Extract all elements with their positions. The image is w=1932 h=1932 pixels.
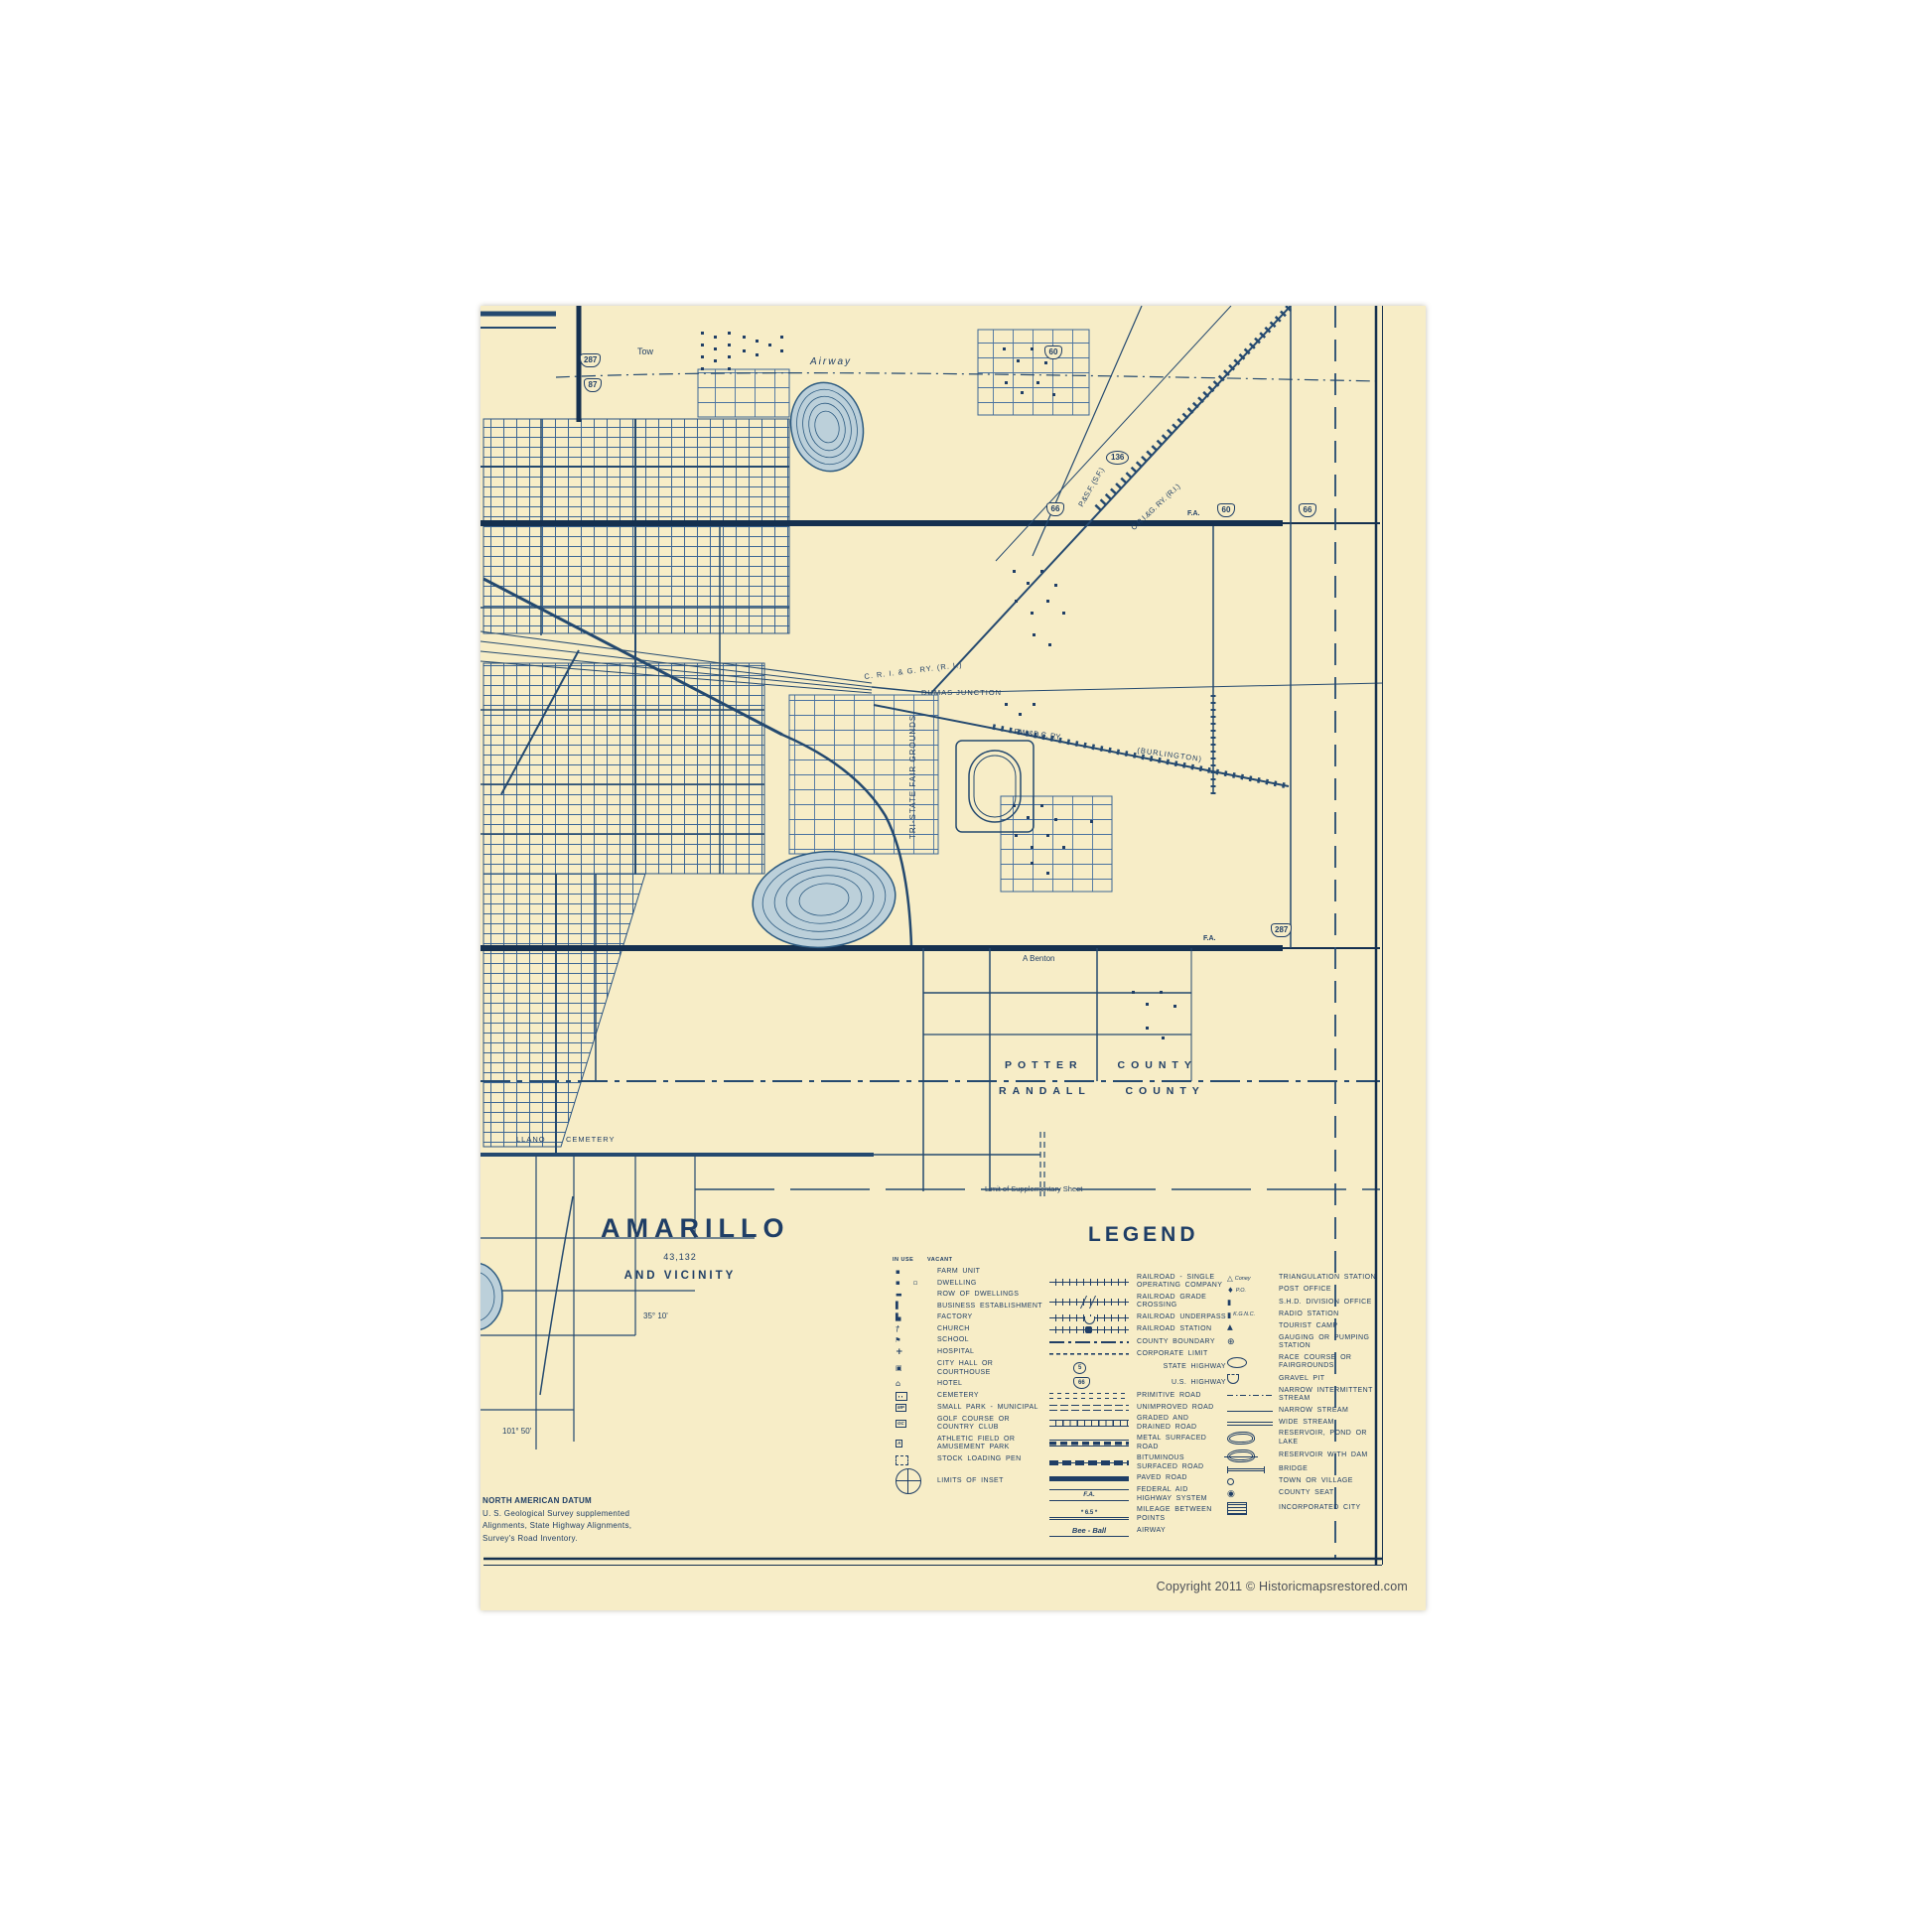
legend-item-label: GAUGING OR PUMPING STATION [1279,1334,1386,1351]
legend-row: A ATHLETIC FIELD OR AMUSEMENT PARK [896,1436,1049,1452]
legend-row: ▙ FACTORY [896,1313,1049,1321]
legend-glyph: ▪ [896,1280,900,1287]
street-grids [483,330,1112,1147]
legend-row: GRADED AND DRAINED ROAD [1049,1415,1226,1432]
legend-item-label: RAILROAD UNDERPASS [1137,1313,1226,1321]
legend-glyph [896,1392,907,1401]
dwelling-symbol: ▪▫ [896,1280,937,1287]
narrow-intermittent-stream-symbol [1227,1395,1279,1397]
label-limit-sheet: Limit of Supplementary Sheet [985,1185,1082,1193]
airway-sample-symbol: Bee - Ball [1049,1526,1129,1537]
label-llano: LLANO [516,1136,546,1144]
legend-item-label: RACE COURSE OR FAIRGROUNDS [1279,1354,1386,1371]
legend-row: RESERVOIR, POND OR LAKE [1227,1430,1416,1447]
legend-item-label: HOTEL [937,1380,962,1388]
legend-row: PAVED ROAD [1049,1474,1226,1483]
legend-row: PRIMITIVE ROAD [1049,1392,1226,1400]
race-course-symbol [1227,1357,1279,1368]
legend-item-label: FACTORY [937,1313,973,1321]
legend-row: BRIDGE [1227,1465,1416,1473]
legend-glyph: ⊕ [1227,1337,1235,1347]
legend-glyph: † [896,1325,899,1333]
legend-item-label: CORPORATE LIMIT [1137,1350,1208,1358]
legend-row: UNIMPROVED ROAD [1049,1404,1226,1412]
gauging-station-symbol: ⊕ [1227,1337,1279,1347]
legend-item-label: SCHOOL [937,1336,969,1344]
datum-line-2: U. S. Geological Survey supplemented [483,1510,631,1518]
legend-item-label: GRADED AND DRAINED ROAD [1137,1415,1226,1432]
legend-glyph [1227,1478,1234,1485]
legend-row: LIMITS OF INSET [896,1468,1049,1494]
legend-item-label: STOCK LOADING PEN [937,1455,1022,1463]
triangulation-station-symbol: △Coney [1227,1274,1279,1283]
legend-glyph [1227,1395,1273,1397]
legend-row: RAILROAD STATION [1049,1325,1226,1334]
legend-row: ▣ CITY HALL OR COURTHOUSE [896,1360,1049,1377]
legend-item-label: BRIDGE [1279,1465,1308,1473]
legend-item-label: U.S. HIGHWAY [1172,1379,1226,1387]
radio-station-symbol: ▮K.G.N.C. [1227,1311,1279,1319]
railroad-underpass-symbol [1049,1313,1129,1322]
legend-vacant-header: VACANT [927,1257,953,1263]
map-population: 43,132 [601,1253,759,1262]
legend-row: ▲ TOURIST CAMP [1227,1322,1416,1331]
county-seat-symbol: ◉ [1227,1489,1279,1499]
legend-item-label: RADIO STATION [1279,1311,1339,1318]
label-randall-county: RANDALL COUNTY [999,1086,1205,1097]
mileage-symbol: * 6.5 * [1049,1509,1129,1520]
legend-column-features: ▪ FARM UNIT ▪▫ DWELLING ▬ ROW OF DWELLIN… [896,1268,1049,1497]
railroad-grade-crossing-symbol [1049,1298,1129,1307]
legend-item-label: ROW OF DWELLINGS [937,1291,1019,1299]
federal-aid-symbol: F.A. [1049,1489,1129,1501]
legend-row: INCORPORATED CITY [1227,1502,1416,1515]
legend-row: ♦P.O. POST OFFICE [1227,1286,1416,1295]
datum-line-3: Alignments, State Highway Alignments, [483,1522,631,1530]
bituminous-road-symbol [1049,1459,1129,1466]
legend-glyph: ▪ [896,1269,900,1276]
legend-item-label: RESERVOIR, POND OR LAKE [1279,1430,1386,1447]
label-a-benton: A Benton [1023,955,1054,963]
legend-item-label: MILEAGE BETWEEN POINTS [1137,1506,1226,1523]
legend-vacant-glyph: ▫ [913,1280,918,1287]
datum-line-4: Survey's Road Inventory. [483,1535,631,1543]
map-scan-canvas: Tow Airway P.&S.F. (S.F.) C.R.I.&G. RY. … [0,0,1932,1932]
legend-glyph [1227,1357,1247,1368]
legend-row: RAILROAD UNDERPASS [1049,1313,1226,1322]
legend-item-label: WIDE STREAM [1279,1419,1334,1427]
cemetery-symbol [896,1392,937,1401]
shd-division-office-symbol: ▮ [1227,1298,1279,1307]
narrow-stream-symbol [1227,1411,1279,1412]
legend-row: STOCK LOADING PEN [896,1455,1049,1465]
legend-glyph: MP [896,1404,906,1413]
legend-glyph: ♦ [1227,1286,1234,1295]
legend-item-label: BITUMINOUS SURFACED ROAD [1137,1454,1226,1471]
label-airway: Airway [810,357,852,367]
us-highway-symbol: 66 [1073,1377,1090,1389]
map-subtitle: AND VICINITY [601,1271,759,1283]
label-tow: Tow [637,347,653,356]
hospital-symbol: + [896,1348,937,1357]
legend-item-label: GRAVEL PIT [1279,1375,1324,1383]
town-village-symbol [1227,1478,1279,1485]
legend-glyph: ▌ [896,1303,900,1310]
legend-row: ◉ COUNTY SEAT [1227,1489,1416,1499]
legend-item-label: ATHLETIC FIELD OR AMUSEMENT PARK [937,1436,1044,1452]
legend-item-label: TOURIST CAMP [1279,1322,1337,1330]
legend-row: NARROW INTERMITTENT STREAM [1227,1387,1416,1404]
legend-row: ⚑ SCHOOL [896,1336,1049,1344]
legend-row: Bee - Ball AIRWAY [1049,1526,1226,1537]
legend-glyph: ▬ [896,1292,902,1299]
legend-row: GRAVEL PIT [1227,1374,1416,1384]
legend-glyph: △ [1227,1274,1233,1283]
legend-item-label: PRIMITIVE ROAD [1137,1392,1201,1400]
legend-item-label: STATE HIGHWAY [1164,1363,1226,1371]
legend-item-label: HOSPITAL [937,1348,974,1356]
golf-course-symbol: GC [896,1420,937,1429]
map-linework [0,0,1932,1932]
legend-item-label: RESERVOIR WITH DAM [1279,1451,1368,1459]
legend-row: + HOSPITAL [896,1348,1049,1357]
legend-row: RAILROAD - SINGLE OPERATING COMPANY [1049,1274,1226,1291]
legend-row: ▌ BUSINESS ESTABLISHMENT [896,1303,1049,1311]
legend-row: ▮ S.H.D. DIVISION OFFICE [1227,1298,1416,1307]
legend-item-label: FEDERAL AID HIGHWAY SYSTEM [1137,1486,1226,1503]
legend-item-label: PAVED ROAD [1137,1474,1187,1482]
tourist-camp-symbol: ▲ [1227,1322,1279,1331]
legend-glyph [1227,1420,1273,1426]
paved-road-symbol [1049,1474,1129,1483]
legend-item-label: COUNTY SEAT [1279,1489,1334,1497]
legend-row: WIDE STREAM [1227,1419,1416,1427]
legend-row: TOWN OR VILLAGE [1227,1477,1416,1485]
legend-row: MP SMALL PARK - MUNICIPAL [896,1404,1049,1413]
legend-item-label: RAILROAD STATION [1137,1325,1211,1333]
legend-item-label: CHURCH [937,1325,970,1333]
legend-row: CORPORATE LIMIT [1049,1350,1226,1359]
label-potter-county: POTTER COUNTY [1005,1060,1197,1071]
legend-row: GC GOLF COURSE OR COUNTRY CLUB [896,1416,1049,1433]
legend-item-label: GOLF COURSE OR COUNTRY CLUB [937,1416,1044,1433]
legend-row: CEMETERY [896,1392,1049,1401]
legend-item-label: FARM UNIT [937,1268,980,1276]
label-fa-us66: F.A. [1187,510,1199,517]
legend-column-roads: RAILROAD - SINGLE OPERATING COMPANY RAIL… [1049,1274,1226,1540]
legend-glyph: ▮ [1227,1311,1231,1319]
legend-row: RACE COURSE OR FAIRGROUNDS [1227,1354,1416,1371]
legend-item-label: RAILROAD GRADE CROSSING [1137,1294,1226,1311]
city-hall-symbol: ▣ [896,1365,937,1372]
legend-glyph: GC [896,1420,906,1429]
legend-glyph [1227,1374,1239,1384]
legend-item-label: AIRWAY [1137,1527,1166,1535]
legend-row: RAILROAD GRADE CROSSING [1049,1294,1226,1311]
post-office-symbol: ♦P.O. [1227,1286,1279,1295]
label-longitude: 101° 50' [502,1428,531,1436]
legend-row: 66 U.S. HIGHWAY [1049,1377,1226,1389]
legend-row: F.A. FEDERAL AID HIGHWAY SYSTEM [1049,1486,1226,1503]
athletic-field-symbol: A [896,1440,937,1449]
legend-glyph: ◉ [1227,1489,1235,1499]
state-highway-symbol: 5 [1073,1362,1086,1374]
county-boundary-symbol [1049,1337,1129,1346]
legend-glyph [1227,1466,1265,1473]
datum-notes: NORTH AMERICAN DATUM U. S. Geological Su… [483,1497,631,1547]
legend-item-label: CITY HALL OR COURTHOUSE [937,1360,1044,1377]
legend-row: ▮K.G.N.C. RADIO STATION [1227,1311,1416,1319]
legend-row: △Coney TRIANGULATION STATION [1227,1274,1416,1283]
legend-row: METAL SURFACED ROAD [1049,1435,1226,1451]
legend-glyph: ▮ [1227,1298,1231,1307]
church-symbol: † [896,1325,937,1333]
legend-row: ▬ ROW OF DWELLINGS [896,1291,1049,1299]
legend-glyph: ▲ [1227,1322,1233,1331]
us-287-shield: 287 [580,353,601,367]
legend-glyph [1227,1449,1255,1462]
legend-item-label: INCORPORATED CITY [1279,1504,1361,1512]
primitive-road-symbol [1049,1393,1129,1399]
label-dumas-junction: DUMAS JUNCTION [921,689,1002,697]
legend-item-label: UNIMPROVED ROAD [1137,1404,1214,1412]
hotel-symbol: ⌂ [896,1380,937,1388]
legend-item-label: BUSINESS ESTABLISHMENT [937,1303,1042,1311]
stock-loading-pen-symbol [896,1455,937,1465]
legend-row: ⌂ HOTEL [896,1380,1049,1388]
legend-item-label: TRIANGULATION STATION [1279,1274,1376,1282]
legend-glyph: + [896,1348,903,1357]
legend-glyph: ▣ [896,1365,902,1372]
legend-item-label: LIMITS OF INSET [937,1477,1004,1485]
legend-row: ⊕ GAUGING OR PUMPING STATION [1227,1334,1416,1351]
label-fa-benton: F.A. [1203,935,1215,942]
gravel-pit-symbol [1227,1374,1279,1384]
legend-column-points: △Coney TRIANGULATION STATION ♦P.O. POST … [1227,1274,1416,1518]
reservoir-dam-symbol [1227,1449,1279,1462]
legend-row: ▪ FARM UNIT [896,1268,1049,1276]
legend-item-label: POST OFFICE [1279,1286,1331,1294]
legend-row: † CHURCH [896,1325,1049,1333]
bridge-symbol [1227,1466,1279,1473]
legend-glyph [896,1468,921,1494]
farm-unit-symbol: ▪ [896,1269,937,1276]
legend-item-label: NARROW INTERMITTENT STREAM [1279,1387,1386,1404]
legend-item-label: DWELLING [937,1280,977,1288]
airway-line [556,373,1380,381]
legend-glyph [1227,1432,1255,1445]
railroad-single-symbol [1049,1278,1129,1287]
legend-glyph: ⌂ [896,1380,900,1388]
reservoir-symbol [1227,1432,1279,1445]
legend-item-label: TOWN OR VILLAGE [1279,1477,1353,1485]
legend-item-label: METAL SURFACED ROAD [1137,1435,1226,1451]
legend-glyph: ⚑ [896,1337,900,1344]
unimproved-road-symbol [1049,1405,1129,1411]
legend-row: 5 STATE HIGHWAY [1049,1362,1226,1374]
metal-road-symbol [1049,1440,1129,1447]
legend-glyph [896,1455,908,1465]
railroad-station-symbol [1049,1325,1129,1334]
lake-southwest [447,1263,502,1330]
row-of-dwellings-symbol: ▬ [896,1292,937,1299]
lake-central [748,845,899,955]
legend-glyph: ▙ [896,1314,900,1321]
map-title: AMARILLO [601,1215,789,1242]
copyright-notice: Copyright 2011 © Historicmapsrestored.co… [1142,1581,1408,1593]
legend-in-use-header: IN USE [893,1257,913,1263]
lake-north [782,375,871,478]
us-287-shield-south: 287 [1271,923,1292,937]
legend-row: * 6.5 * MILEAGE BETWEEN POINTS [1049,1506,1226,1523]
legend-row: NARROW STREAM [1227,1407,1416,1415]
legend-item-label: CEMETERY [937,1392,979,1400]
legend-row: BITUMINOUS SURFACED ROAD [1049,1454,1226,1471]
label-latitude: 35° 10' [643,1312,668,1320]
wide-stream-symbol [1227,1420,1279,1426]
legend-glyph: A [896,1440,902,1449]
corporate-limit-symbol [1049,1350,1129,1359]
limits-of-inset-symbol [896,1468,937,1494]
legend-symbol-text: P.O. [1236,1288,1246,1294]
legend-row: COUNTY BOUNDARY [1049,1337,1226,1346]
legend-symbol-text: Coney [1235,1276,1251,1282]
graded-road-symbol [1049,1420,1129,1427]
label-tri-state-fairgrounds: TRI-STATE FAIR GROUNDS [909,735,917,839]
business-establishment-symbol: ▌ [896,1303,937,1310]
legend-title: LEGEND [1088,1224,1199,1245]
legend-item-label: COUNTY BOUNDARY [1137,1338,1215,1346]
legend-item-label: RAILROAD - SINGLE OPERATING COMPANY [1137,1274,1226,1291]
legend-item-label: SMALL PARK - MUNICIPAL [937,1404,1038,1412]
legend-item-label: S.H.D. DIVISION OFFICE [1279,1299,1372,1307]
legend-glyph [1227,1411,1273,1412]
legend-row: ▪▫ DWELLING [896,1280,1049,1288]
legend-symbol-text: K.G.N.C. [1233,1311,1255,1317]
legend-item-label: NARROW STREAM [1279,1407,1348,1415]
datum-title: NORTH AMERICAN DATUM [483,1497,631,1505]
legend-glyph [1227,1502,1247,1515]
small-park-symbol: MP [896,1404,937,1413]
factory-symbol: ▙ [896,1314,937,1321]
label-cemetery: CEMETERY [566,1136,616,1144]
legend-row: RESERVOIR WITH DAM [1227,1449,1416,1462]
incorporated-city-symbol [1227,1502,1279,1515]
school-symbol: ⚑ [896,1337,937,1344]
